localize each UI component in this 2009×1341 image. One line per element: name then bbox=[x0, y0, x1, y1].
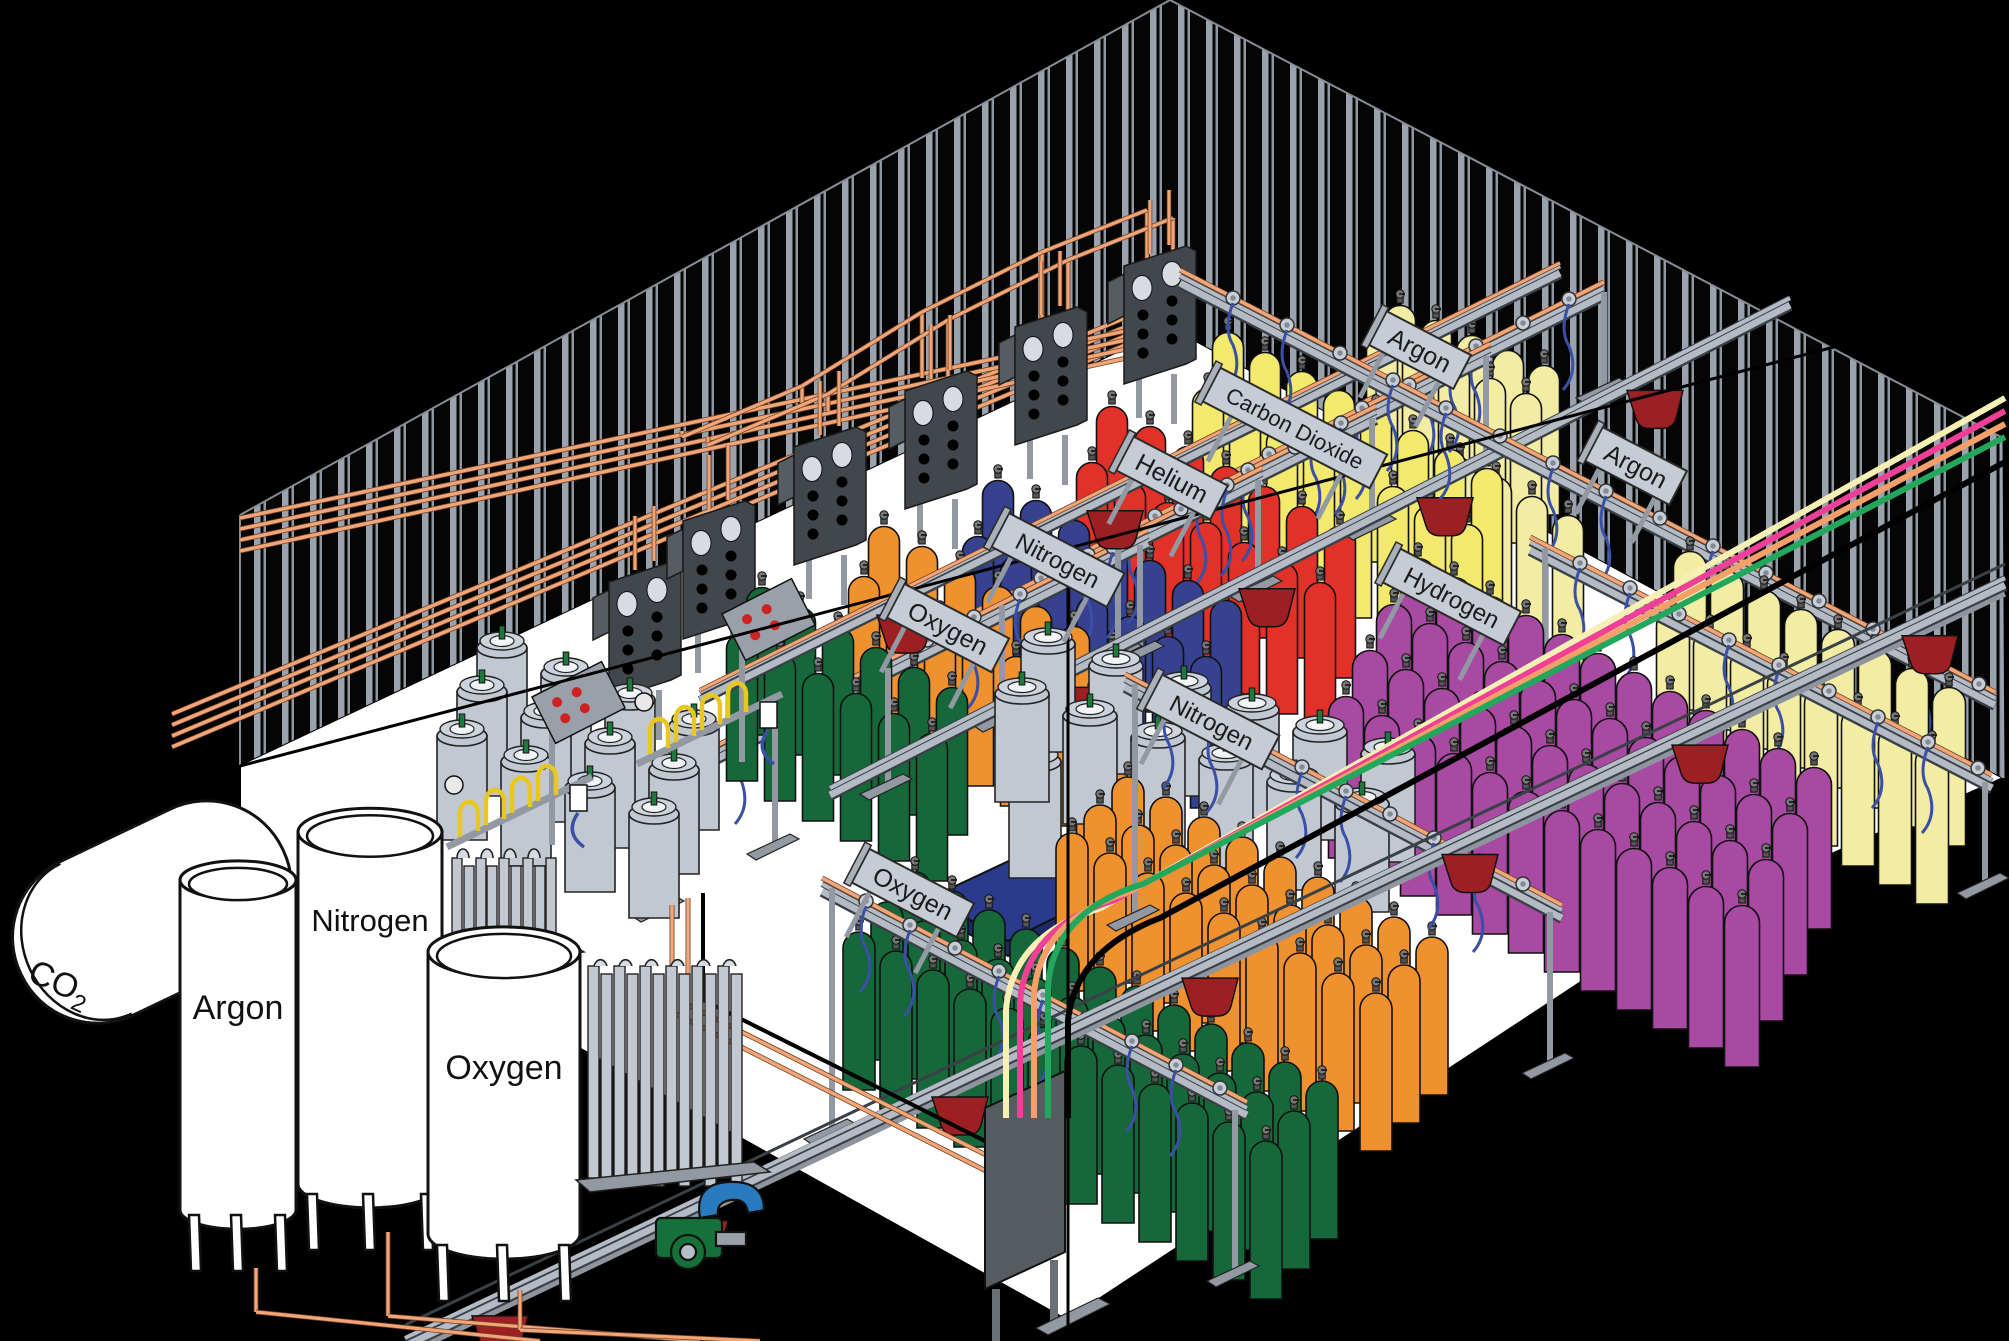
svg-text:Nitrogen: Nitrogen bbox=[311, 903, 428, 938]
svg-text:Argon: Argon bbox=[193, 989, 284, 1027]
svg-text:Oxygen: Oxygen bbox=[445, 1049, 562, 1087]
